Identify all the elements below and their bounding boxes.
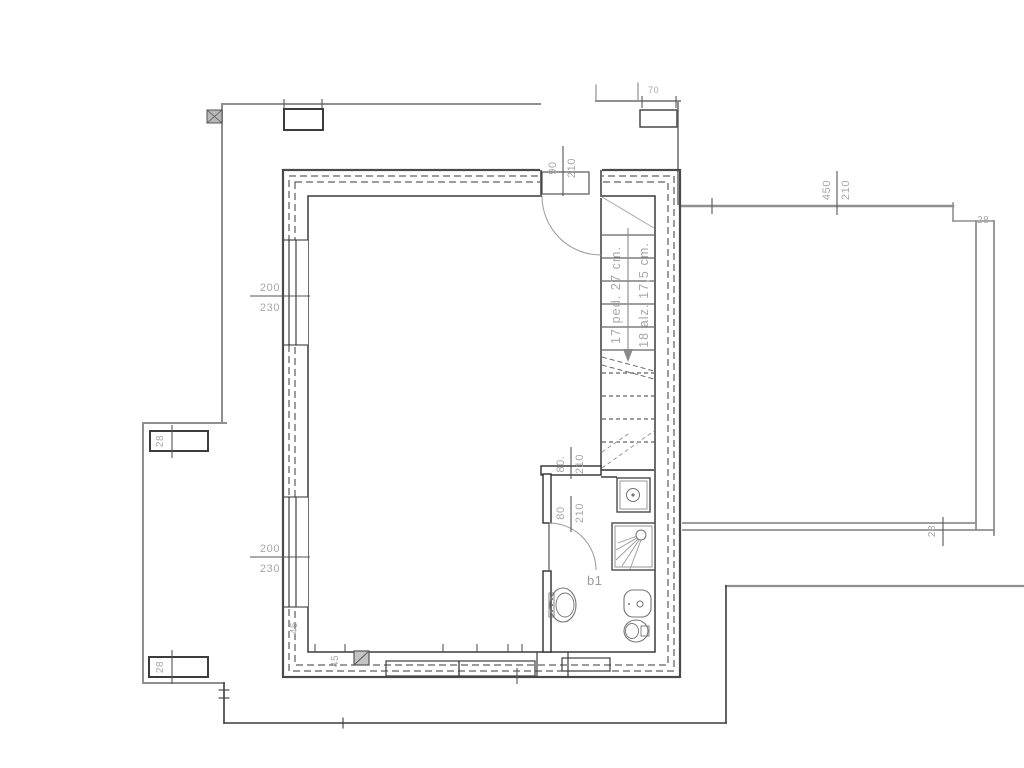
stair-landing-diagonal [602, 197, 654, 228]
stair-treads-hidden [602, 373, 654, 442]
entry-door-swing-arc [542, 196, 601, 255]
toilet [624, 620, 649, 642]
bottom-windows [354, 651, 610, 677]
dim-bath-upper-height: 210 [575, 454, 586, 474]
hatched-post-icon [207, 110, 222, 123]
dim-28-pier-upper: 28 [156, 431, 168, 451]
dim-entry-door: 90 210 [548, 156, 578, 180]
dim-window-upper: 200 230 [250, 283, 290, 314]
appliance [617, 478, 650, 512]
pillar-top-middle [640, 110, 677, 127]
dim-45-corner: 45 [290, 618, 302, 638]
dim-bath-upper-width: 80. [556, 455, 567, 472]
floor-plan-canvas: 90 210 450 210 200 230 200 230 80. 210 8… [0, 0, 1024, 768]
dim-28-terrace-top: 28 [977, 216, 989, 226]
bath-door-swing-arc [549, 523, 596, 570]
dim-terrace-opening: 450 210 [822, 178, 852, 202]
dim-window-lower-width: 200 [260, 544, 280, 555]
dim-entry-door-height: 210 [567, 158, 578, 178]
dim-bath-opening-upper: 80. 210 [556, 452, 586, 476]
dim-terrace-width: 450 [822, 180, 833, 200]
shower [612, 523, 655, 570]
stair-under-hatch [602, 431, 654, 468]
stair-direction-arrow [623, 349, 633, 362]
stair-note-treads: 17 ped. 27 cm. [610, 246, 623, 344]
dim-window-upper-height: 230 [260, 303, 280, 314]
dim-70-top: 70 [648, 86, 659, 95]
dim-window-lower-height: 230 [260, 564, 280, 575]
dim-entry-door-width: 90 [548, 161, 559, 174]
dim-28-pier-lower: 28 [156, 657, 168, 677]
dim-bath-door-height: 210 [575, 503, 586, 523]
bidet [624, 590, 651, 617]
dim-bath-door-width: 80 [556, 506, 567, 519]
pillar-top-left [284, 109, 323, 130]
room-label-b1: b1 [587, 575, 602, 586]
dim-window-upper-width: 200 [260, 283, 280, 294]
washbasin [549, 588, 576, 622]
dim-28-terrace-bottom: 28 [928, 521, 940, 541]
stair-note-risers: 18 alz. 17,5 cm. [638, 242, 651, 348]
dim-terrace-height: 210 [841, 180, 852, 200]
stair-note: 17 ped. 27 cm. 18 alz. 17,5 cm. [610, 242, 652, 348]
dim-45-bottom: 45 [331, 651, 343, 671]
dim-bath-door: 80 210 [556, 501, 586, 525]
plan-linework [0, 0, 1024, 768]
dim-window-lower: 200 230 [250, 544, 290, 575]
column-post-icon [354, 651, 369, 665]
